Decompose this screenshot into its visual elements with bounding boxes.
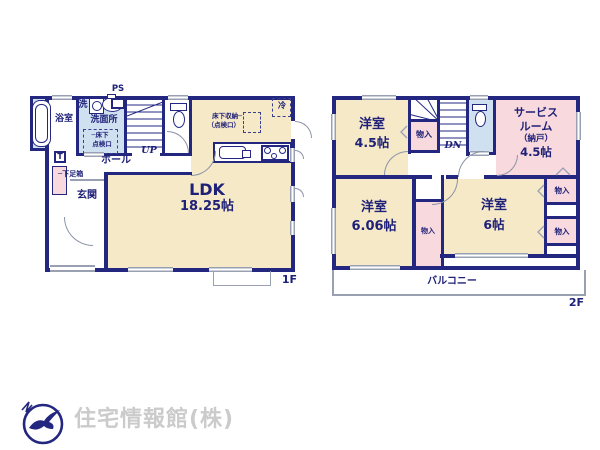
ldk-label: LDK [189,182,225,199]
wall [544,216,580,219]
fridge-label: 冷 [278,102,286,110]
fold-door-mark-up [555,167,571,176]
storage-label-2: （点検口） [208,122,241,129]
window [331,208,336,254]
closet-a-label: 物入 [416,131,432,139]
storage-label-1: 床下収納─ [212,113,242,120]
wall [544,202,580,205]
room45-label: 洋室 [359,118,385,132]
room606-label: 洋室 [361,201,387,215]
window [470,95,488,100]
inspection-label-1: ─床下 [92,132,109,139]
window [52,95,72,100]
bathtub-inner [35,104,48,143]
wall [493,96,496,155]
toilet-bowl-2f [475,111,486,127]
room45-size-label: 4.5帖 [355,136,390,149]
stove-burner [264,147,271,154]
stairs-winder [408,96,440,122]
shoebox-label: ─下足箱 [58,171,83,178]
ldk-floor-left [107,174,192,268]
balcony-label: バルコニー [427,277,477,288]
floor1-label: 1F [282,274,297,286]
service-label-2: ルーム [520,121,553,133]
wall [104,172,108,270]
room606-size-label: 6.06帖 [351,220,396,234]
wall [104,172,192,175]
fold-door-mark [537,225,545,239]
service-size-label: 4.5帖 [520,146,552,158]
casement-window-arc [295,188,304,197]
casement-window-arc [295,150,304,159]
ldk-size-label: 18.25帖 [180,200,234,214]
window [362,95,396,100]
washing-machine-drum [92,101,102,111]
washer-label: 洗 [78,101,87,110]
floorplan-canvas: PS 浴室 洗 洗面所 ─床下 点検口 UP ホール T ─下足箱 玄関 LDK… [0,0,600,450]
window [331,114,336,140]
washroom-label: 洗面所 [90,116,117,125]
fold-door-mark [537,184,545,198]
toilet-tank-2f [472,104,487,111]
wall [412,175,416,268]
kitchen-faucet [242,150,251,158]
company-name: 住宅情報館(株) [74,408,234,431]
entrance-label: 玄関 [77,191,97,202]
room6-label: 洋室 [481,199,507,213]
window [168,95,188,100]
toilet-tank-1f [170,103,187,111]
ldk-exterior-door-arc [295,121,312,138]
closet-d-label: 物入 [555,187,570,195]
wall [160,153,192,156]
porch-step-line [50,270,95,272]
window [576,112,581,140]
terrace-step [213,271,271,286]
fold-door-mark [400,125,408,139]
stove-burner [271,153,277,159]
ps-label: PS [112,85,124,94]
window [128,267,173,272]
ps-shaft [111,98,125,109]
wall [544,243,580,246]
service-label-3: （納戸） [519,135,553,144]
company-logo [18,398,66,446]
stove-burner [279,147,286,154]
wall [189,96,192,154]
service-label-1: サービス [514,107,558,119]
window [455,253,528,258]
closet-e-label: 物入 [555,228,570,236]
window [350,265,400,270]
hall-label: ホール [101,156,131,167]
closet-c-label: 物入 [421,228,435,235]
bathroom-label: 浴室 [55,115,73,124]
underfloor-storage-box [243,112,261,133]
t-label: T [57,153,62,161]
dn-label: DN [445,141,462,151]
porch-step-line [50,265,95,267]
room6-size-label: 6帖 [483,218,504,231]
floor2-label: 2F [569,297,584,309]
wall [332,175,432,179]
wall [466,96,469,156]
hall-entrance-divider [70,179,104,181]
window [290,221,295,235]
toilet-bowl-1f [173,111,185,128]
inspection-label-2: 点検口 [92,141,112,148]
up-label: UP [141,146,156,156]
